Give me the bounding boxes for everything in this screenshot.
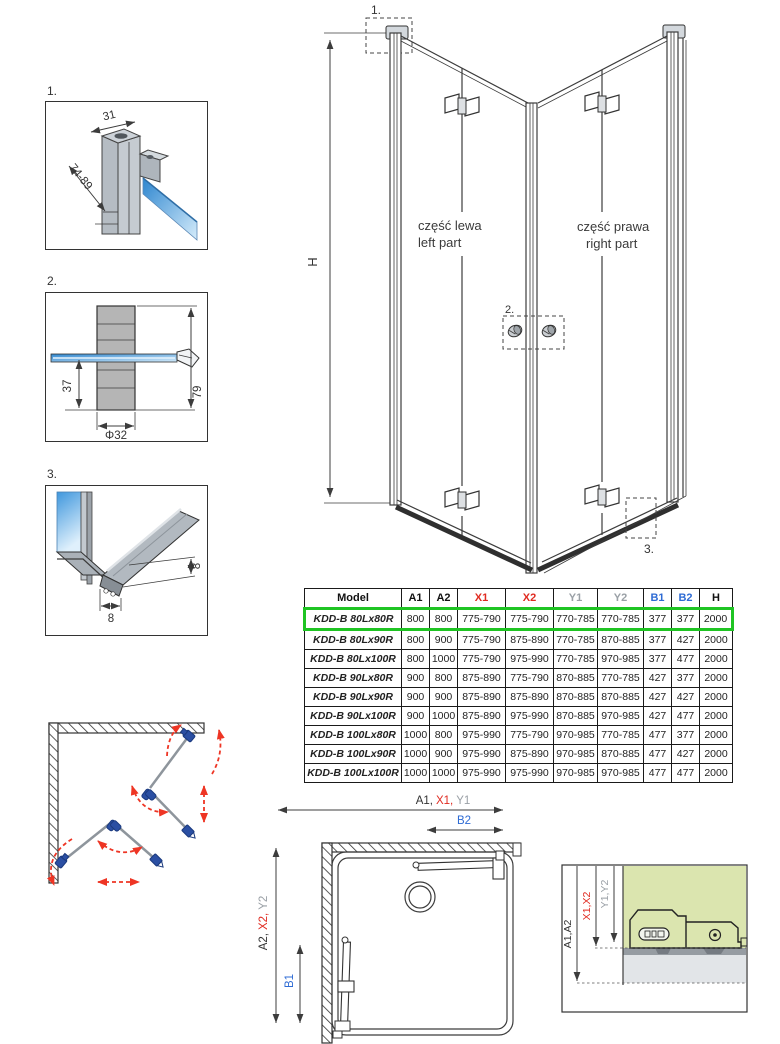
detail-2-label: 2. (47, 274, 57, 288)
value-cell: 975-990 (506, 707, 554, 726)
value-cell: 477 (644, 726, 672, 745)
value-cell: 870-885 (554, 688, 598, 707)
table-row: KDD-B 80Lx90R800900775-790875-890770-785… (305, 630, 733, 650)
size-table: ModelA1A2X1X2Y1Y2B1B2H KDD-B 80Lx80R8008… (303, 588, 734, 783)
value-cell: 1000 (430, 707, 458, 726)
value-cell: 875-890 (458, 669, 506, 688)
right-back-profile (663, 25, 686, 502)
value-cell: 427 (672, 745, 700, 764)
top-width-dim: A1,X1,Y1 (416, 795, 471, 807)
bottom-rails (396, 496, 686, 573)
model-cell: KDD-B 90Lx100R (305, 707, 402, 726)
value-cell: 975-990 (458, 726, 506, 745)
value-cell: 477 (672, 707, 700, 726)
value-cell: 1000 (402, 745, 430, 764)
value-cell: 975-990 (506, 650, 554, 669)
value-cell: 970-985 (598, 764, 644, 783)
value-cell: 477 (644, 764, 672, 783)
hinge-icon (445, 488, 479, 510)
left-part-label-en: left part (418, 235, 462, 250)
hinge-icon (585, 485, 619, 507)
model-cell: KDD-B 80Lx90R (305, 630, 402, 650)
seal-height-dim: 8 (191, 563, 203, 569)
left-back-profile (386, 26, 408, 505)
value-cell: 900 (402, 707, 430, 726)
value-cell: 870-885 (598, 745, 644, 764)
left-part-label-pl: część lewa (418, 218, 482, 233)
value-cell: 900 (402, 669, 430, 688)
h-dimension: H (305, 33, 399, 503)
value-cell: 377 (672, 669, 700, 688)
table-row: KDD-B 90Lx80R900800875-890775-790870-885… (305, 669, 733, 688)
walls (322, 843, 521, 1043)
fold-hinge-icon (141, 788, 157, 801)
value-cell: 770-785 (554, 650, 598, 669)
b2-dim: B2 (457, 815, 471, 827)
col-header-0: Model (305, 589, 402, 609)
offset-dim: 37 (62, 380, 74, 393)
svg-text:3.: 3. (644, 542, 654, 556)
folding-schematic (25, 710, 250, 930)
wall-end-profile (513, 843, 521, 856)
folded-door-top (413, 851, 504, 879)
col-header-2: A2 (430, 589, 458, 609)
value-cell: 427 (644, 688, 672, 707)
value-cell: 875-890 (458, 688, 506, 707)
value-cell: 770-785 (598, 609, 644, 630)
value-cell: 477 (644, 745, 672, 764)
value-cell: 377 (644, 650, 672, 669)
glass-top-edges (401, 36, 667, 108)
model-cell: KDD-B 90Lx80R (305, 669, 402, 688)
value-cell: 970-985 (554, 745, 598, 764)
value-cell: 2000 (700, 745, 733, 764)
col-header-6: Y2 (598, 589, 644, 609)
value-cell: 875-890 (458, 707, 506, 726)
value-cell: 800 (402, 609, 430, 630)
value-cell: 1000 (402, 764, 430, 783)
shower-tray (332, 852, 513, 1035)
fold-hinge-icon (106, 819, 122, 832)
value-cell: 2000 (700, 688, 733, 707)
value-cell: 770-785 (554, 630, 598, 650)
value-cell: 2000 (700, 669, 733, 688)
knob-icon (506, 323, 523, 339)
detail-3-figure: 3. 8 8 (45, 465, 208, 640)
col-header-8: B2 (672, 589, 700, 609)
value-cell: 775-790 (506, 726, 554, 745)
table-row: KDD-B 80Lx80R800800775-790775-790770-785… (305, 609, 733, 630)
col-header-5: Y1 (554, 589, 598, 609)
table-row: KDD-B 100Lx90R1000900975-990875-890970-9… (305, 745, 733, 764)
value-cell: 870-885 (554, 669, 598, 688)
value-cell: 975-990 (458, 745, 506, 764)
value-cell: 775-790 (458, 609, 506, 630)
table-row: KDD-B 90Lx90R900900875-890875-890870-885… (305, 688, 733, 707)
manual-page: 1. 31 74-89 2. 37 (0, 0, 780, 1044)
right-door-panels (141, 727, 198, 841)
table-row: KDD-B 90Lx100R9001000875-890975-990870-8… (305, 707, 733, 726)
detail-1-label: 1. (47, 84, 57, 98)
top-view-drawing: A1,X1,Y1 B2 A2,X2,Y2 B1 (250, 785, 540, 1044)
left-wall (322, 843, 332, 1043)
folded-door-left (333, 937, 354, 1038)
value-cell: 377 (644, 630, 672, 650)
value-cell: 770-785 (554, 609, 598, 630)
diameter-dim: Φ32 (105, 430, 127, 442)
value-cell: 870-885 (598, 630, 644, 650)
value-cell: 2000 (700, 609, 733, 630)
value-cell: 2000 (700, 707, 733, 726)
x-dim: X1,X2 (581, 892, 593, 921)
value-cell: 477 (672, 650, 700, 669)
value-cell: 775-790 (458, 650, 506, 669)
col-header-9: H (700, 589, 733, 609)
value-cell: 2000 (700, 630, 733, 650)
value-cell: 800 (430, 609, 458, 630)
value-cell: 427 (672, 630, 700, 650)
value-cell: 875-890 (506, 745, 554, 764)
main-enclosure-drawing: H 1. (300, 0, 780, 585)
seal-width-dim: 8 (108, 613, 114, 625)
left-dimensions: A2,X2,Y2 B1 (258, 848, 300, 1023)
model-cell: KDD-B 100Lx80R (305, 726, 402, 745)
value-cell: 900 (402, 688, 430, 707)
col-header-4: X2 (506, 589, 554, 609)
value-cell: 975-990 (458, 764, 506, 783)
value-cell: 775-790 (506, 609, 554, 630)
value-cell: 970-985 (598, 650, 644, 669)
top-wall (322, 843, 520, 852)
value-cell: 970-985 (554, 726, 598, 745)
value-cell: 975-990 (506, 764, 554, 783)
model-cell: KDD-B 100Lx90R (305, 745, 402, 764)
value-cell: 870-885 (554, 707, 598, 726)
size-table-wrap: ModelA1A2X1X2Y1Y2B1B2H KDD-B 80Lx80R8008… (303, 588, 731, 783)
model-cell: KDD-B 80Lx80R (305, 609, 402, 630)
top-dimensions: A1,X1,Y1 B2 (278, 795, 503, 830)
value-cell: 427 (672, 688, 700, 707)
detail-2-figure: 2. 37 79 Φ32 (45, 272, 208, 444)
value-cell: 775-790 (458, 630, 506, 650)
value-cell: 875-890 (506, 688, 554, 707)
value-cell: 377 (672, 609, 700, 630)
value-cell: 870-885 (598, 688, 644, 707)
extension-profile-detail: A1,A2 X1,X2 Y1,Y2 (555, 858, 755, 1016)
glass-pane (57, 492, 81, 552)
table-row: KDD-B 100Lx80R1000800975-990775-790970-9… (305, 726, 733, 745)
height-dim-label: H (305, 257, 320, 266)
value-cell: 775-790 (506, 669, 554, 688)
header-row: ModelA1A2X1X2Y1Y2B1B2H (305, 589, 733, 609)
value-cell: 2000 (700, 726, 733, 745)
model-cell: KDD-B 80Lx100R (305, 650, 402, 669)
size-table-head: ModelA1A2X1X2Y1Y2B1B2H (305, 589, 733, 609)
value-cell: 770-785 (598, 669, 644, 688)
right-part-label-en: right part (586, 236, 638, 251)
table-row: KDD-B 100Lx100R10001000975-990975-990970… (305, 764, 733, 783)
value-cell: 900 (430, 630, 458, 650)
right-part-label-pl: część prawa (577, 219, 650, 234)
b1-dim: B1 (284, 974, 296, 988)
knob-icon (540, 323, 557, 339)
left-height-dim: A2,X2,Y2 (258, 896, 270, 951)
slot (639, 928, 669, 940)
callout-2-label: 2. (505, 304, 514, 316)
detail-1-figure: 1. 31 74-89 (45, 82, 208, 252)
a-dim: A1,A2 (562, 920, 574, 949)
value-cell: 1000 (430, 764, 458, 783)
value-cell: 427 (644, 669, 672, 688)
left-wall (49, 723, 58, 883)
value-cell: 875-890 (506, 630, 554, 650)
height-dim: 79 (192, 386, 204, 399)
value-cell: 970-985 (554, 764, 598, 783)
model-cell: KDD-B 90Lx90R (305, 688, 402, 707)
col-header-1: A1 (402, 589, 430, 609)
detail-3-label: 3. (47, 467, 57, 481)
value-cell: 377 (672, 726, 700, 745)
value-cell: 800 (402, 630, 430, 650)
value-cell: 900 (430, 688, 458, 707)
value-cell: 477 (672, 764, 700, 783)
value-cell: 970-985 (598, 707, 644, 726)
value-cell: 2000 (700, 650, 733, 669)
value-cell: 377 (644, 609, 672, 630)
opening-arrows (51, 725, 220, 885)
value-cell: 2000 (700, 764, 733, 783)
left-door-panels (55, 819, 166, 870)
model-cell: KDD-B 100Lx100R (305, 764, 402, 783)
y-dim: Y1,Y2 (599, 880, 611, 909)
value-cell: 800 (430, 726, 458, 745)
profile-bands (623, 948, 746, 983)
value-cell: 770-785 (598, 726, 644, 745)
value-cell: 427 (644, 707, 672, 726)
value-cell: 1000 (402, 726, 430, 745)
col-header-7: B1 (644, 589, 672, 609)
col-header-3: X1 (458, 589, 506, 609)
center-front-profile (526, 103, 537, 573)
size-table-body: KDD-B 80Lx80R800800775-790775-790770-785… (305, 609, 733, 783)
table-row: KDD-B 80Lx100R8001000775-790975-990770-7… (305, 650, 733, 669)
value-cell: 1000 (430, 650, 458, 669)
value-cell: 800 (430, 669, 458, 688)
svg-text:1.: 1. (371, 3, 381, 17)
value-cell: 800 (402, 650, 430, 669)
value-cell: 900 (430, 745, 458, 764)
